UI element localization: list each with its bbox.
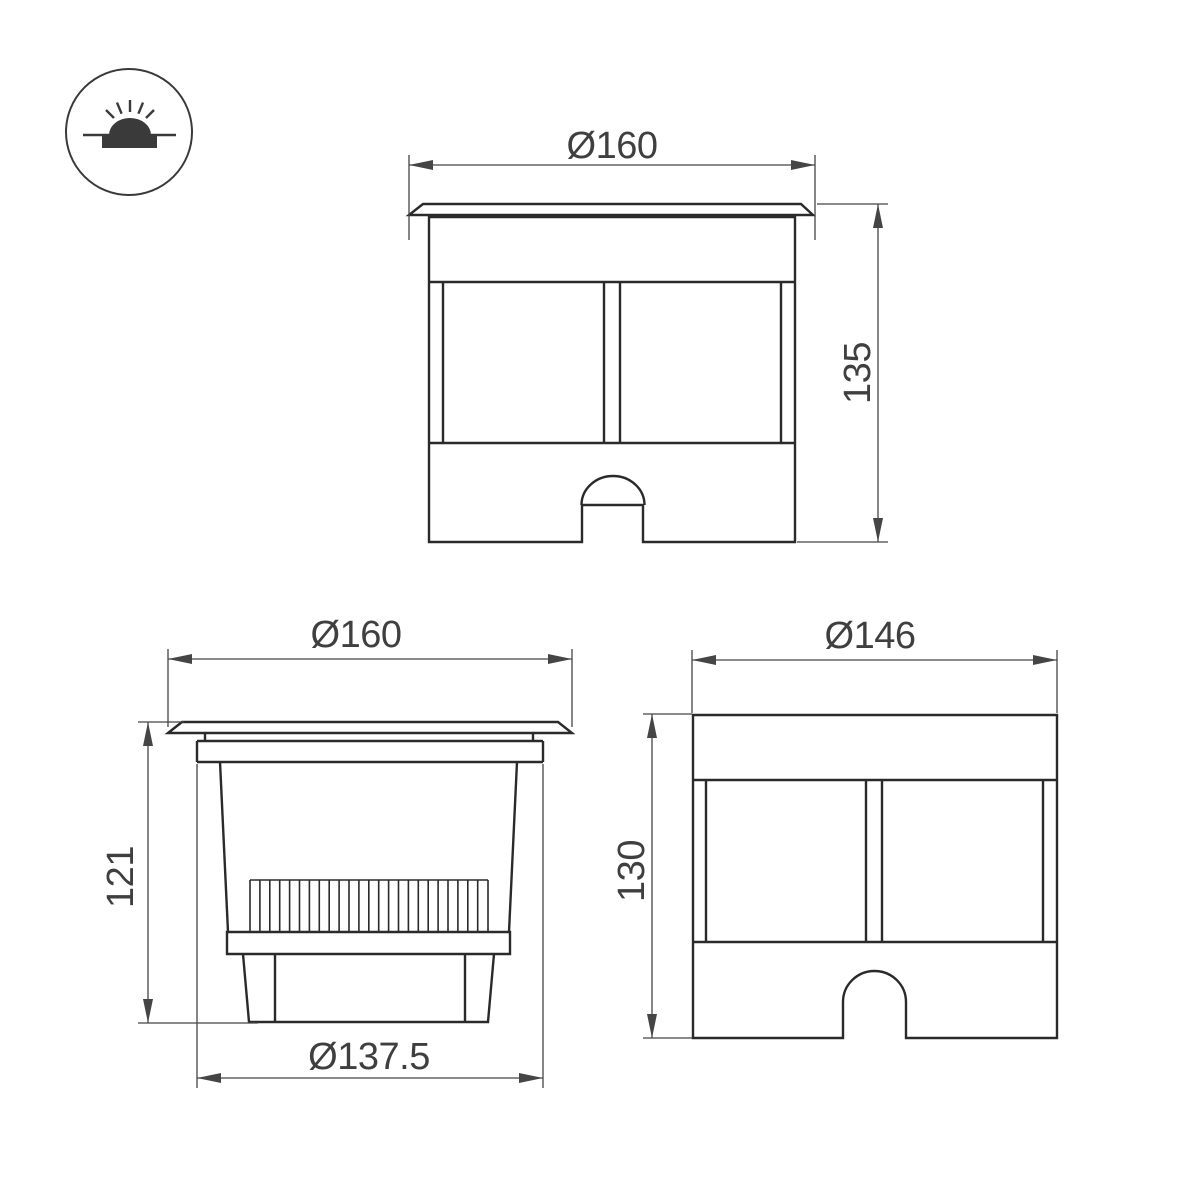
front-view-with-flange xyxy=(409,204,813,542)
arrowhead-left xyxy=(197,1073,221,1083)
dimension-front-height: 135 xyxy=(797,204,888,542)
icon-light-rays xyxy=(106,100,154,118)
side-mounting-plate xyxy=(227,932,510,954)
front-body-outline xyxy=(429,217,795,542)
icon-recessed-body xyxy=(102,135,157,148)
drawing-canvas: Ø160 135 Ø160 121 Ø137.5 xyxy=(0,0,1200,1200)
arrowhead-top xyxy=(647,714,657,738)
dimension-body-width: Ø146 xyxy=(692,615,1057,713)
arrowhead-left xyxy=(692,655,716,665)
body-view-without-flange xyxy=(693,715,1057,1038)
arrowhead-bottom xyxy=(647,1014,657,1038)
dimension-side-body-diameter: Ø137.5 xyxy=(197,764,543,1088)
arrowhead-right xyxy=(519,1073,543,1083)
body-lens-windows xyxy=(693,780,1057,942)
body-width-label: Ø146 xyxy=(825,615,916,657)
arrowhead-bottom xyxy=(143,999,153,1023)
arrowhead-right xyxy=(548,654,572,664)
extension-lines xyxy=(138,722,258,1023)
arrowhead-left xyxy=(168,654,192,664)
side-view-housing xyxy=(168,722,572,1022)
arrowhead-top xyxy=(143,722,153,746)
technical-drawing-sheet: Ø160 135 Ø160 121 Ø137.5 xyxy=(0,0,1200,1200)
front-cable-dome xyxy=(582,476,645,505)
front-flange xyxy=(409,204,813,215)
icon-lamp-dome xyxy=(109,118,151,135)
front-height-label: 135 xyxy=(837,342,879,404)
dimension-side-height: 121 xyxy=(100,722,258,1023)
arrowhead-bottom xyxy=(873,518,883,542)
arrowhead-top xyxy=(873,204,883,228)
dimension-body-height: 130 xyxy=(611,714,692,1038)
heatsink-fins xyxy=(250,880,488,932)
side-base xyxy=(243,954,494,1022)
body-height-label: 130 xyxy=(611,840,653,902)
arrowhead-right xyxy=(1033,655,1057,665)
side-body-diameter-label: Ø137.5 xyxy=(308,1036,430,1078)
side-collar xyxy=(197,733,543,762)
body-outline xyxy=(693,715,1057,1038)
extension-lines xyxy=(168,649,572,727)
dimension-front-width: Ø160 xyxy=(409,125,815,240)
dimension-side-width: Ø160 xyxy=(168,614,572,727)
extension-lines xyxy=(409,155,815,240)
front-width-label: Ø160 xyxy=(567,125,658,167)
side-width-label: Ø160 xyxy=(311,614,402,656)
arrowhead-left xyxy=(409,160,433,170)
recessed-ground-light-icon xyxy=(66,69,192,195)
side-flange xyxy=(168,722,572,733)
arrowhead-right xyxy=(791,160,815,170)
side-height-label: 121 xyxy=(100,846,142,908)
front-lens-windows xyxy=(429,282,795,443)
